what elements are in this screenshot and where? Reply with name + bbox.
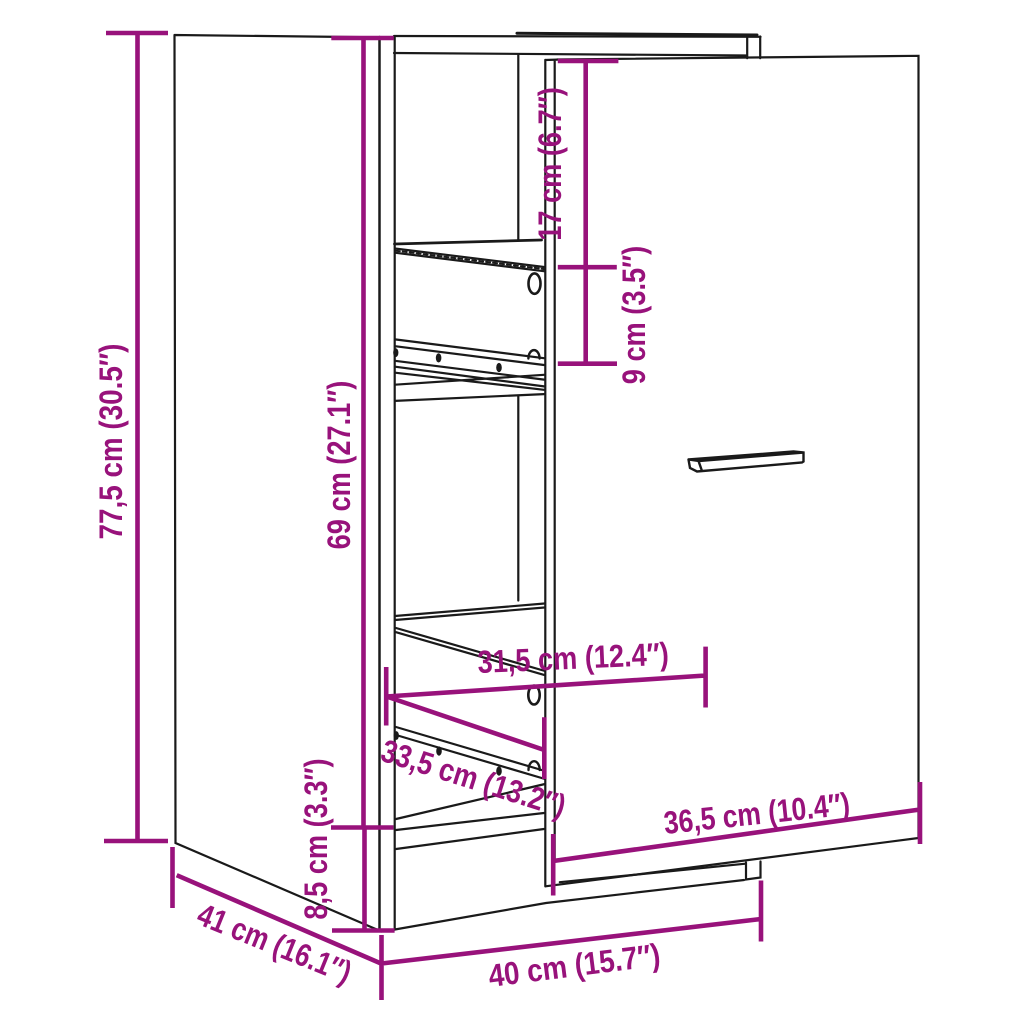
svg-text:69 cm (27.1″): 69 cm (27.1″) [322, 381, 358, 550]
svg-text:17 cm (6.7″): 17 cm (6.7″) [533, 87, 569, 241]
svg-text:9 cm (3.5″): 9 cm (3.5″) [617, 246, 653, 384]
svg-text:8,5 cm (3.3″): 8,5 cm (3.3″) [299, 758, 335, 919]
svg-text:77,5 cm (30.5″): 77,5 cm (30.5″) [94, 344, 129, 540]
